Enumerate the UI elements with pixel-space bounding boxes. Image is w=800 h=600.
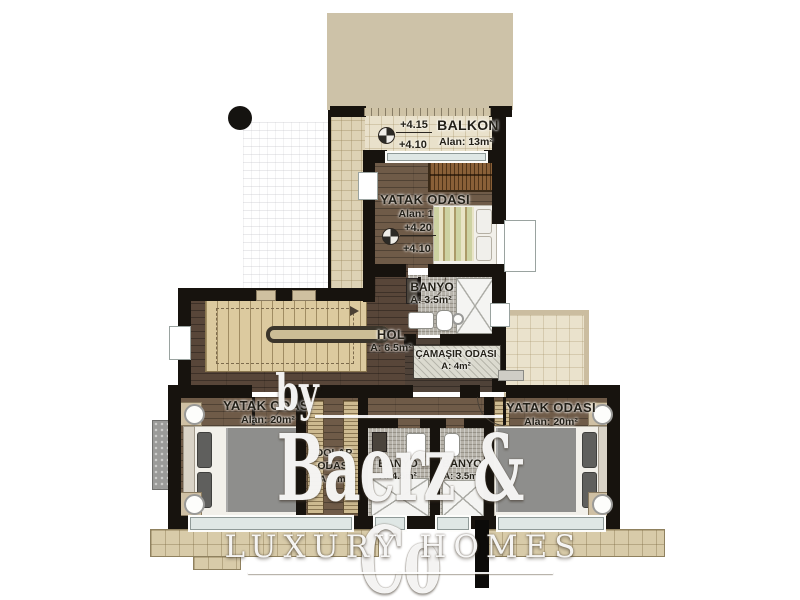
stair-top-wall (178, 288, 375, 301)
level-marker-icon (382, 228, 399, 245)
bedroom-banyo-wall-left (375, 264, 406, 277)
level-marker-icon (378, 127, 395, 144)
bedside-lamp (592, 494, 613, 515)
balcony-railing (364, 108, 491, 116)
balcony-sliding-door (387, 153, 486, 161)
hol-label: HOL (368, 328, 414, 342)
camasir-label: ÇAMAŞIR ODASI (414, 349, 498, 360)
bed-pillow (476, 209, 492, 234)
bedroom-top-level-upper: +4.20 (400, 222, 444, 236)
bedroom-top-level-lower: +4.10 (403, 243, 443, 255)
plan-marker-dot-icon (228, 106, 252, 130)
watermark-tagline: LUXURY HOMES (180, 532, 620, 563)
stair-direction-arrow-icon (350, 306, 359, 316)
bedside-lamp (184, 494, 205, 515)
banyo-right-window (490, 303, 510, 327)
bedroom-top-label: YATAK ODASI (378, 193, 472, 207)
bottom-top-wall-d (506, 385, 620, 398)
banyo-top-sink (408, 312, 434, 329)
pergola-grid (243, 122, 331, 292)
bedroom-right-window-box (504, 220, 536, 272)
banyo-top-shower (456, 278, 494, 334)
balkon-area: Alan: 13m² (428, 137, 504, 149)
bedroom-banyo-wall-right (428, 264, 506, 277)
bottom-left-wall (168, 385, 181, 529)
balcony-rail-left-wall (330, 106, 366, 117)
balkon-label: BALKON (430, 118, 506, 133)
bed-pillow (476, 236, 492, 261)
floor-plan-canvas: +4.15 +4.10 BALKON Alan: 13m² YATAK ODAS… (0, 0, 800, 600)
hol-area: A: 6.5m² (364, 343, 418, 355)
stair-window (169, 326, 191, 360)
stair-wall-lintel (256, 290, 276, 301)
watermark-rule-bottom (248, 572, 553, 574)
stair-wall-lintel (292, 290, 316, 301)
bed-pillow (582, 432, 597, 468)
bottom-wall-a (168, 516, 190, 529)
banyo-top-label: BANYO (408, 281, 456, 294)
banyo-top-area: A: 3.5m² (406, 295, 456, 307)
banyo-top-fixture-knob (452, 313, 464, 325)
watermark-by: by (273, 368, 321, 418)
terrace-door-leaf (498, 370, 524, 381)
bedroom-top-window (358, 172, 378, 200)
bedroom-top-wardrobe (428, 160, 496, 192)
balcony-bedroom-wall-left (363, 150, 387, 163)
roof-overhang (327, 13, 513, 110)
bottom-top-wall-a (168, 385, 252, 398)
bottom-wall-e (602, 516, 620, 529)
camasir-area: A: 4m² (414, 362, 498, 372)
balcony-side-walkway (328, 110, 365, 296)
bedroom-top-area: Alan: 1 (392, 209, 440, 221)
bed-pillow (197, 432, 212, 468)
banyo-top-toilet (436, 310, 453, 331)
